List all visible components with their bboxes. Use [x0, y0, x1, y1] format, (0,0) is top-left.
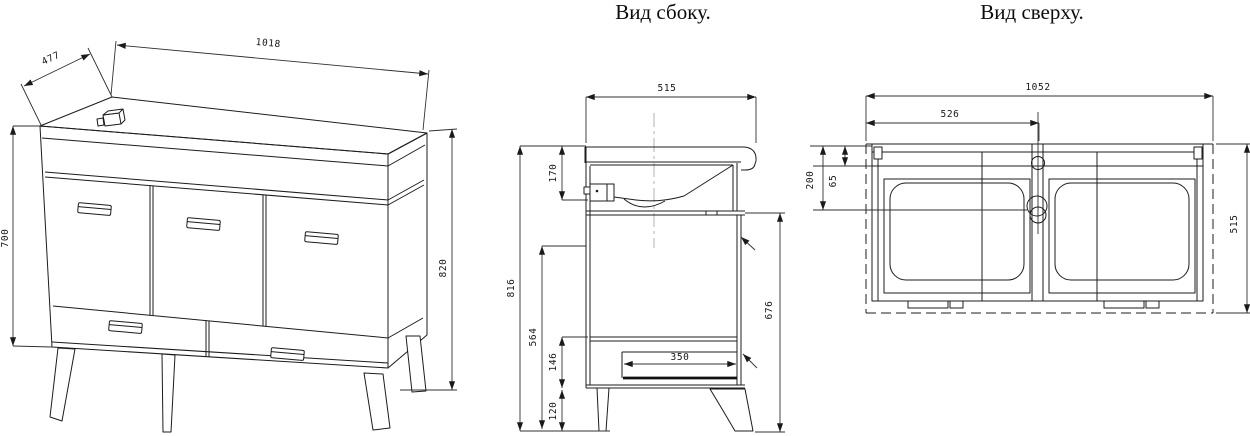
dim-back-rail: 65 [828, 175, 839, 188]
side-back-leg [597, 388, 609, 431]
cabinet-front-face [40, 126, 388, 368]
dim-drawer-depth: 350 [671, 352, 690, 363]
door-handles [78, 203, 339, 361]
sink-bowl [614, 165, 733, 201]
side-outline [584, 147, 757, 431]
dim-carcass-front: 676 [764, 301, 775, 320]
side-view-dimensions: 515 816 170 564 146 120 676 350 [506, 83, 785, 432]
shelf-under-sink [586, 211, 745, 215]
dim-countertop-depth: 515 [1229, 215, 1240, 234]
front-upper-edge [733, 163, 737, 211]
dim-top-width: 1018 [255, 37, 281, 50]
side-view-title: Вид сбоку. [615, 0, 711, 24]
dim-sink-section: 170 [548, 164, 559, 183]
fitting-nub [97, 118, 104, 126]
dim-countertop-width: 1052 [1025, 82, 1050, 93]
dim-lower-section: 564 [528, 328, 539, 347]
feet-tabs [908, 301, 1159, 308]
drawer-leader-arrow [743, 354, 757, 368]
dim-overall-height: 816 [506, 279, 517, 298]
back-rail-lines [872, 152, 1203, 166]
overflow-fitting-box [97, 109, 125, 126]
dim-top-depth: 515 [658, 83, 677, 94]
dim-legs: 120 [548, 402, 559, 421]
door-dividers [150, 186, 266, 326]
technical-drawing-sheet: 1018 477 700 820 Вид сбоку. [0, 0, 1250, 436]
dim-back-zone: 200 [805, 171, 816, 190]
dim-body-height: 700 [0, 229, 11, 248]
dim-depth: 477 [40, 50, 62, 68]
hinge-left [874, 147, 882, 159]
right-compartment [1049, 179, 1195, 293]
left-compartment [884, 179, 1030, 293]
hinge-right [1194, 147, 1202, 159]
cabinet-bottom [586, 385, 745, 388]
door-front-edge [737, 215, 741, 385]
drawer-band-top [53, 306, 423, 338]
front-perspective-view: 1018 477 700 820 [0, 37, 457, 432]
top-view: Вид сверху. 1052 526 [805, 0, 1250, 313]
siphon-nub [584, 187, 590, 194]
back-panel [586, 147, 590, 388]
apron-lines [45, 172, 424, 205]
side-front-leg [710, 389, 753, 431]
top-outline [866, 112, 1213, 313]
dim-sink-center: 526 [941, 109, 960, 120]
side-view: Вид сбоку. 51 [506, 0, 785, 432]
cabinet-outline [40, 97, 427, 368]
left-bowl [890, 183, 1024, 280]
cabinet-bottom-inner [52, 342, 388, 363]
drawing-svg: 1018 477 700 820 Вид сбоку. [0, 0, 1250, 436]
top-view-title: Вид сверху. [980, 0, 1083, 24]
cabinet-right-face [388, 133, 427, 368]
drawer-band [590, 337, 737, 341]
siphon-box [590, 184, 614, 201]
right-bowl [1055, 183, 1189, 280]
dim-total-height: 820 [438, 259, 449, 278]
dim-drawer-front: 146 [548, 353, 559, 372]
door-leader-arrow [741, 237, 755, 250]
